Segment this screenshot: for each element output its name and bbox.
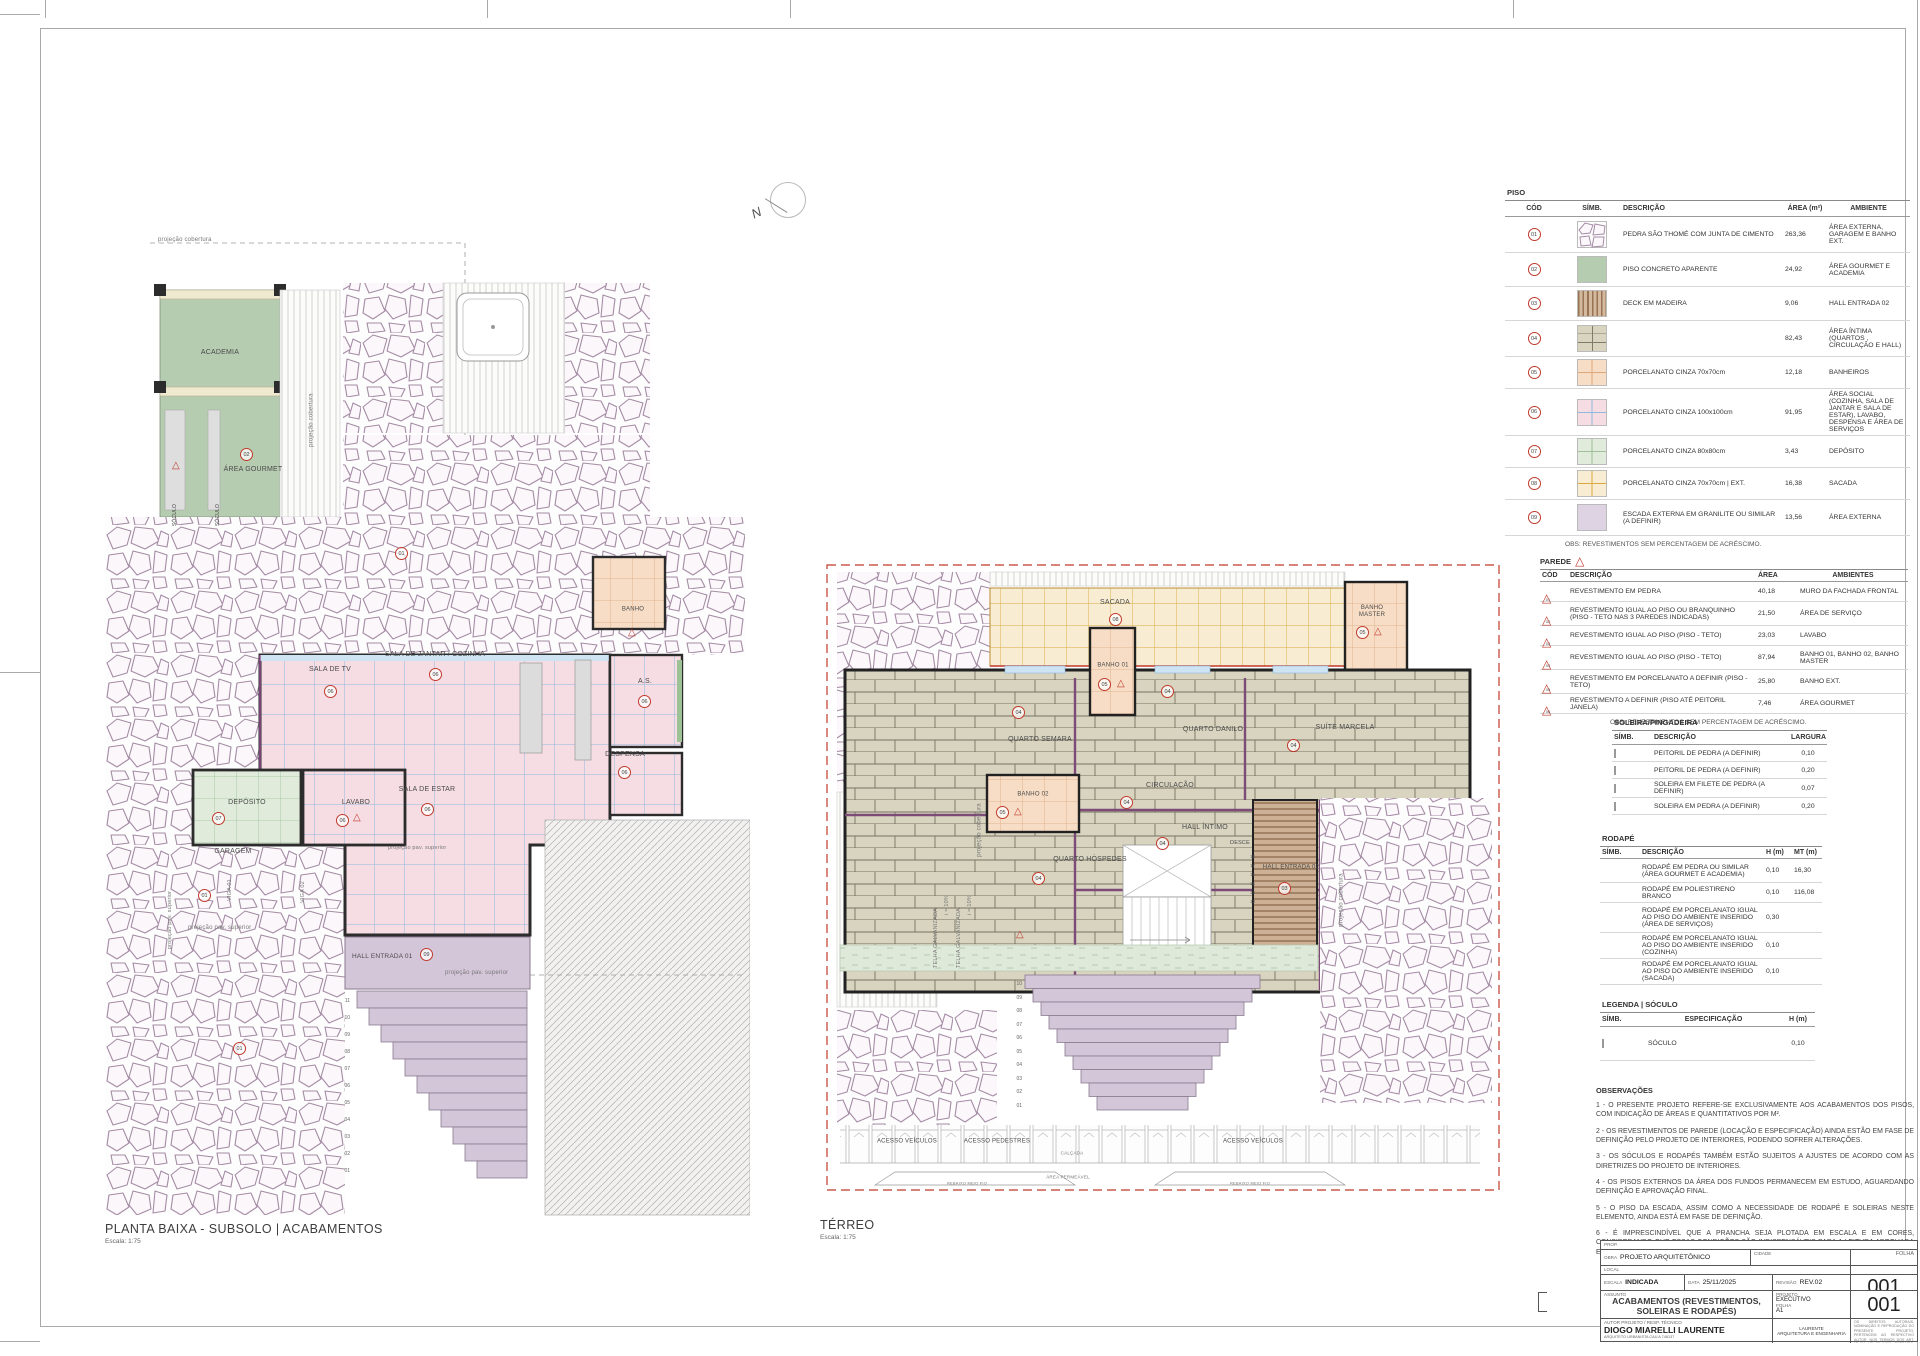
soculo-row: SÓCULO 0,10 xyxy=(1600,1027,1815,1061)
piso-code-marker: 03 xyxy=(1278,882,1291,895)
room-label-deposito: DEPÓSITO xyxy=(228,799,266,807)
stair-label-desce: DESCE xyxy=(1230,840,1250,846)
soleira-desc: SOLEIRA EM FILETE DE PEDRA (A DEFINIR) xyxy=(1652,781,1789,795)
parede-code: 02 xyxy=(1542,619,1554,624)
stair-step-numbers: 11 10 09 08 07 06 05 04 03 02 01 xyxy=(336,993,350,1180)
piso-row: 06 PORCELANATO CINZA 100x100cm 91,95 ÁRE… xyxy=(1505,389,1910,436)
piso-amb: SACADA xyxy=(1827,480,1910,487)
piso-code-marker: 04 xyxy=(1287,739,1300,752)
parede-row: △01 REVESTIMENTO EM PEDRA 40,18 MURO DA … xyxy=(1540,582,1908,602)
soleira-symbol xyxy=(1614,749,1616,758)
soleira-larg: 0,07 xyxy=(1789,785,1827,792)
tick xyxy=(0,14,40,15)
col-header: SÍMB. xyxy=(1563,205,1621,212)
room-label-circulacao: CIRCULAÇÃO xyxy=(1146,782,1194,790)
parede-amb: ÁREA GOURMET xyxy=(1798,700,1908,707)
projection-label: projeção pav. superior xyxy=(388,845,446,851)
parede-table-title: PAREDE xyxy=(1540,557,1571,566)
rodape-h: 0,10 xyxy=(1764,889,1792,896)
piso-amb: HALL ENTRADA 02 xyxy=(1827,300,1910,307)
parede-amb: BANHO EXT. xyxy=(1798,678,1908,685)
rodape-desc: RODAPÉ EM PEDRA OU SIMILAR (ÁREA GOURMET… xyxy=(1640,864,1764,878)
rodape-row: RODAPÉ EM POLIESTIRENO BRANCO 0,10 116,0… xyxy=(1600,883,1822,903)
titleblock-assunto-value: ACABAMENTOS (REVESTIMENTOS, SOLEIRAS E R… xyxy=(1604,1297,1769,1317)
rodape-desc: RODAPÉ EM PORCELANATO IGUAL AO PISO DO A… xyxy=(1640,961,1764,982)
piso-amb: ÁREA SOCIAL (COZINHA, SALA DE JANTAR E S… xyxy=(1827,391,1910,433)
soleira-larg: 0,20 xyxy=(1789,767,1827,774)
soleira-row: PEITORIL DE PEDRA (A DEFINIR) 0,20 xyxy=(1612,762,1827,779)
swatch-porcelanato-100 xyxy=(1577,399,1607,426)
piso-area: 9,06 xyxy=(1783,300,1827,307)
piso-amb: ÁREA EXTERNA, GARAGEM E BANHO EXT. xyxy=(1827,224,1910,245)
parede-row: △04 REVESTIMENTO IGUAL AO PISO (PISO - T… xyxy=(1540,646,1908,670)
parede-desc: REVESTIMENTO IGUAL AO PISO (PISO - TETO) xyxy=(1568,632,1756,639)
titleblock-sheet-number: 001 xyxy=(1851,1275,1917,1290)
piso-code-marker: 01 xyxy=(198,889,211,902)
room-label-hall-intimo: HALL ÍNTIMO xyxy=(1182,824,1228,832)
parede-code: 05 xyxy=(1542,687,1554,692)
parede-area: 40,18 xyxy=(1756,588,1798,595)
piso-desc: PORCELANATO CINZA 100x100cm xyxy=(1621,409,1783,416)
piso-row: 02 PISO CONCRETO APARENTE 24,92 ÁREA GOU… xyxy=(1505,253,1910,287)
sheet-edge-line xyxy=(1917,0,1918,1356)
piso-legend-table: PISO CÓD SÍMB. DESCRIÇÃO ÁREA (m²) AMBIE… xyxy=(1505,186,1910,548)
swatch-porcelanato-ext xyxy=(1577,470,1607,497)
piso-code-marker: 04 xyxy=(1161,685,1174,698)
titleblock-cidade-label: CIDADE xyxy=(1754,1251,1771,1256)
area-permeavel-label: ÁREA PERMEÁVEL xyxy=(1046,1174,1090,1179)
piso-code: 02 xyxy=(1528,263,1541,276)
titleblock-obra-label: OBRA xyxy=(1604,1255,1617,1260)
swatch-porcelanato-70 xyxy=(1577,359,1607,386)
piso-area: 12,18 xyxy=(1783,369,1827,376)
swatch-concrete xyxy=(1577,256,1607,283)
room-label-academia: ACADEMIA xyxy=(201,349,239,357)
stair-step-numbers: 10 09 08 07 06 05 04 03 02 01 xyxy=(1008,978,1022,1113)
piso-code-marker: 08 xyxy=(1109,613,1122,626)
col-header: ÁREA (m²) xyxy=(1783,205,1827,212)
piso-code-marker: 09 xyxy=(420,948,433,961)
titleblock-autor-value: DIOGO MIARELLI LAURENTE xyxy=(1604,1325,1769,1335)
piso-area: 3,43 xyxy=(1783,448,1827,455)
rodape-h: 0,10 xyxy=(1764,867,1792,874)
piso-desc: PISO CONCRETO APARENTE xyxy=(1621,266,1783,273)
piso-code: 01 xyxy=(1528,228,1541,241)
room-label-suite-marcela: SUÍTE MARCELA xyxy=(1316,724,1375,732)
titleblock-autor-sub: ARQUITETO URBANISTA CAU A 748137 xyxy=(1604,1335,1769,1339)
col-header: CÓD xyxy=(1505,205,1563,212)
col-header: H (m) xyxy=(1781,1016,1815,1023)
rebaixo-label: REBAIXO MEIO FIO xyxy=(1230,1182,1270,1187)
parede-code: 03 xyxy=(1542,641,1554,646)
swatch-vinyl-plank xyxy=(1577,325,1607,352)
room-label-banho-ext: BANHO xyxy=(622,607,644,614)
piso-obs-note: OBS: REVESTIMENTOS SEM PERCENTAGEM DE AC… xyxy=(1505,536,1910,548)
room-label-quarto-hospedes: QUARTO HÓSPEDES xyxy=(1053,856,1127,864)
room-label-hall-entrada-02: HALL ENTRADA 02 xyxy=(1263,865,1319,872)
soleira-row: SOLEIRA EM FILETE DE PEDRA (A DEFINIR) 0… xyxy=(1612,779,1827,798)
room-label-garagem: GARAGEM xyxy=(214,848,251,856)
room-label-lavabo: LAVABO xyxy=(342,799,370,807)
rodape-h: 0,10 xyxy=(1764,968,1792,975)
roof-label-telha: TELHA GALVANIZADA xyxy=(933,908,939,968)
north-arrow-icon xyxy=(770,182,806,218)
room-label-sala-jantar: SALA DE JANTAR / COZINHA xyxy=(385,651,485,659)
piso-table-title: PISO xyxy=(1505,186,1910,201)
parede-code-triangle: △ xyxy=(628,628,636,638)
tick xyxy=(487,0,488,18)
tick xyxy=(1513,0,1514,18)
piso-amb: BANHEIROS xyxy=(1827,369,1910,376)
roof-label-telha: TELHA GALVANIZADA xyxy=(956,908,962,968)
piso-code: 05 xyxy=(1528,366,1541,379)
piso-row: 09 ESCADA EXTERNA EM GRANILITE OU SIMILA… xyxy=(1505,500,1910,536)
parede-area: 87,94 xyxy=(1756,654,1798,661)
swatch-porcelanato-80 xyxy=(1577,438,1607,465)
soleira-legend-table: SOLEIRA/PINGADEIRA SÍMB. DESCRIÇÃO LARGU… xyxy=(1612,716,1827,815)
piso-code-marker: 06 xyxy=(336,814,349,827)
piso-area: 263,36 xyxy=(1783,231,1827,238)
parede-desc: REVESTIMENTO EM PORCELANATO A DEFINIR (P… xyxy=(1568,675,1756,689)
col-header: SÍMB. xyxy=(1612,734,1652,741)
soleira-row: SOLEIRA EM PEDRA (A DEFINIR) 0,20 xyxy=(1612,798,1827,815)
soculo-label: SÓCULO xyxy=(216,504,222,526)
piso-desc: PORCELANATO CINZA 70x70cm xyxy=(1621,369,1783,376)
piso-code-marker: 06 xyxy=(324,685,337,698)
access-label-veiculos: ACESSO VEÍCULOS xyxy=(1223,1139,1283,1146)
titleblock-local-label: LOCAL xyxy=(1601,1266,1851,1274)
projection-label: projeção pav. superior xyxy=(445,970,508,977)
parede-amb: LAVABO xyxy=(1798,632,1908,639)
swatch-granilite xyxy=(1577,504,1607,531)
col-header: ÁREA xyxy=(1756,572,1798,579)
parede-desc: REVESTIMENTO IGUAL AO PISO (PISO - TETO) xyxy=(1568,654,1756,661)
col-header: ESPECIFICAÇÃO xyxy=(1646,1016,1781,1023)
plan-scale-subsolo: Escala: 1:75 xyxy=(105,1238,141,1245)
titleblock-obra-value: PROJETO ARQUITETÔNICO xyxy=(1620,1254,1710,1261)
rodape-mt: 116,08 xyxy=(1792,889,1822,896)
parede-row: △03 REVESTIMENTO IGUAL AO PISO (PISO - T… xyxy=(1540,626,1908,646)
parede-code: 06 xyxy=(1542,709,1554,714)
piso-amb: ÁREA GOURMET E ACADEMIA xyxy=(1827,263,1910,277)
projection-label: projeção pav. superior xyxy=(167,891,173,949)
soleira-desc: SOLEIRA EM PEDRA (A DEFINIR) xyxy=(1652,803,1789,810)
parede-code-triangle: △ xyxy=(1374,627,1382,637)
piso-row: 03 DECK EM MADEIRA 9,06 HALL ENTRADA 02 xyxy=(1505,287,1910,321)
col-header: AMBIENTES xyxy=(1798,572,1908,579)
piso-area: 13,56 xyxy=(1783,514,1827,521)
piso-desc: ESCADA EXTERNA EM GRANILITE OU SIMILAR (… xyxy=(1621,511,1783,525)
col-header: CÓD xyxy=(1540,572,1568,579)
swatch-stone xyxy=(1577,221,1607,248)
piso-code-marker: 06 xyxy=(429,668,442,681)
rodape-desc: RODAPÉ EM POLIESTIRENO BRANCO xyxy=(1640,886,1764,900)
plan-title-subsolo: PLANTA BAIXA - SUBSOLO | ACABAMENTOS xyxy=(105,1222,383,1236)
soculo-legend-table: LEGENDA | SÓCULO SÍMB. ESPECIFICAÇÃO H (… xyxy=(1600,998,1815,1061)
soleira-larg: 0,20 xyxy=(1789,803,1827,810)
parede-row: △05 REVESTIMENTO EM PORCELANATO A DEFINI… xyxy=(1540,670,1908,694)
observacao-item: 5 - O PISO DA ESCADA, ASSIM COMO A NECES… xyxy=(1596,1204,1914,1223)
parede-area: 7,46 xyxy=(1756,700,1798,707)
plan-terreo-drawing xyxy=(825,560,1515,1220)
titleblock-sheet-number: 001 xyxy=(1851,1291,1917,1318)
parede-code: 01 xyxy=(1542,597,1554,602)
col-header: MT (m) xyxy=(1792,849,1822,856)
piso-table-header: CÓD SÍMB. DESCRIÇÃO ÁREA (m²) AMBIENTE xyxy=(1505,201,1910,217)
titleblock-disclaimer: OS DIREITOS AUTORAIS, NOMINAÇÃO E REPROD… xyxy=(1851,1319,1917,1343)
projection-label: projeção cobertura xyxy=(977,803,984,857)
rebaixo-label: REBAIXO MEIO FIO xyxy=(947,1182,987,1187)
soleira-desc: PEITORIL DE PEDRA (A DEFINIR) xyxy=(1652,767,1789,774)
titleblock-folha2-value: A1 xyxy=(1776,1308,1847,1314)
piso-area: 91,95 xyxy=(1783,409,1827,416)
room-label-sacada: SACADA xyxy=(1100,599,1130,607)
parede-row: △02 REVESTIMENTO IGUAL AO PISO OU BRANQU… xyxy=(1540,602,1908,626)
piso-code-marker: 04 xyxy=(1012,706,1025,719)
tick xyxy=(0,672,40,673)
rodape-row: RODAPÉ EM PEDRA OU SIMILAR (ÁREA GOURMET… xyxy=(1600,859,1822,883)
piso-row: 04 82,43 ÁREA ÍNTIMA (QUARTOS , CIRCULAÇ… xyxy=(1505,321,1910,357)
projection-label: projeção pav. superior xyxy=(188,925,251,932)
parede-code-triangle: △ xyxy=(172,461,180,471)
soculo-desc: SÓCULO xyxy=(1646,1040,1781,1047)
parede-legend-table: PAREDE △ CÓD DESCRIÇÃO ÁREA AMBIENTES △0… xyxy=(1540,554,1908,726)
piso-row: 01 PEDRA SÃO THOMÉ COM JUNTA DE CIMENTO … xyxy=(1505,217,1910,253)
soculo-h: 0,10 xyxy=(1781,1040,1815,1047)
room-label-despensa: DESPENSA xyxy=(605,751,645,759)
soculo-symbol xyxy=(1602,1039,1604,1048)
col-header: SÍMB. xyxy=(1600,1016,1646,1023)
plan-title-terreo: TÉRREO xyxy=(820,1218,875,1232)
titleblock-revisao-value: REV.02 xyxy=(1799,1279,1822,1286)
piso-desc: PORCELANATO CINZA 80x80cm xyxy=(1621,448,1783,455)
soculo-label: SÓCULO xyxy=(173,504,179,526)
piso-row: 05 PORCELANATO CINZA 70x70cm 12,18 BANHE… xyxy=(1505,357,1910,389)
parede-code-triangle: △ xyxy=(1117,679,1125,689)
titleblock-bracket xyxy=(1538,1292,1547,1312)
tick xyxy=(45,0,46,18)
parede-code-triangle: △ xyxy=(1016,930,1024,940)
access-label-pedestres: ACESSO PEDESTRES xyxy=(964,1139,1030,1146)
parede-code-triangle: △ xyxy=(1014,807,1022,817)
titleblock-folha-label: FOLHA xyxy=(1896,1251,1914,1257)
piso-code-marker: 05 xyxy=(1098,678,1111,691)
roof-label-inclinacao: i = 10% xyxy=(967,895,973,915)
piso-code: 08 xyxy=(1528,477,1541,490)
piso-desc: PEDRA SÃO THOMÉ COM JUNTA DE CIMENTO xyxy=(1621,231,1783,238)
col-header: DESCRIÇÃO xyxy=(1652,734,1789,741)
parede-area: 25,80 xyxy=(1756,678,1798,685)
titleblock-prop-label: PROP. xyxy=(1601,1241,1917,1249)
title-block: PROP. OBRA PROJETO ARQUITETÔNICO CIDADE … xyxy=(1600,1240,1918,1342)
piso-code-marker: 06 xyxy=(421,803,434,816)
room-label-sala-estar: SALA DE ESTAR xyxy=(399,786,456,794)
room-label-banho02: BANHO 02 xyxy=(1017,792,1048,799)
parede-desc: REVESTIMENTO EM PEDRA xyxy=(1568,588,1756,595)
titleblock-revisao-label: REVISÃO xyxy=(1776,1280,1796,1285)
piso-code: 07 xyxy=(1528,445,1541,458)
observacao-item: 3 - OS SÓCULOS E RODAPÉS TAMBÉM ESTÃO SU… xyxy=(1596,1152,1914,1171)
rodape-table-title: RODAPÉ xyxy=(1600,832,1822,847)
piso-code-marker: 04 xyxy=(1120,796,1133,809)
projection-label: projeção cobertura xyxy=(1339,873,1346,927)
piso-code-marker: 07 xyxy=(212,812,225,825)
piso-desc: PORCELANATO CINZA 70x70cm | EXT. xyxy=(1621,480,1783,487)
col-header: DESCRIÇÃO xyxy=(1621,205,1783,212)
roof-label-inclinacao: i = 10% xyxy=(944,895,950,915)
parede-amb: BANHO 01, BANHO 02, BANHO MASTER xyxy=(1798,651,1908,665)
parede-code: 04 xyxy=(1542,663,1554,668)
piso-amb: ÁREA ÍNTIMA (QUARTOS , CIRCULAÇÃO E HALL… xyxy=(1827,328,1910,349)
rodape-row: RODAPÉ EM PORCELANATO IGUAL AO PISO DO A… xyxy=(1600,903,1822,933)
piso-code-marker: 02 xyxy=(240,448,253,461)
projection-label: projeção cobertura xyxy=(309,393,316,447)
parede-row: △06 REVESTIMENTO A DEFINIR (PISO ATÉ PEI… xyxy=(1540,694,1908,714)
rodape-h: 0,30 xyxy=(1764,914,1792,921)
parede-area: 21,50 xyxy=(1756,610,1798,617)
access-label-veiculos: ACESSO VEÍCULOS xyxy=(877,1139,937,1146)
room-label-sala-tv: SALA DE TV xyxy=(309,666,351,674)
room-label-banho-master: BANHO MASTER xyxy=(1359,605,1385,619)
piso-code: 03 xyxy=(1528,297,1541,310)
piso-area: 16,38 xyxy=(1783,480,1827,487)
col-header: LARGURA xyxy=(1789,734,1827,741)
rodape-mt: 16,30 xyxy=(1792,867,1822,874)
viga-label: VIGA 02 xyxy=(300,881,306,903)
tick xyxy=(790,0,791,18)
piso-code-marker: 01 xyxy=(233,1042,246,1055)
drawing-sheet: projeção cobertura ACADEMIA ÁREA GOURMET… xyxy=(0,0,1920,1356)
soleira-desc: PEITORIL DE PEDRA (A DEFINIR) xyxy=(1652,750,1789,757)
tick xyxy=(0,1341,40,1342)
piso-code: 06 xyxy=(1528,406,1541,419)
piso-code-marker: 05 xyxy=(1356,626,1369,639)
parede-area: 23,03 xyxy=(1756,632,1798,639)
soleira-larg: 0,10 xyxy=(1789,750,1827,757)
titleblock-escala-value: INDICADA xyxy=(1625,1279,1658,1286)
plan-scale-terreo: Escala: 1:75 xyxy=(820,1234,856,1241)
piso-code: 09 xyxy=(1528,511,1541,524)
rodape-row: RODAPÉ EM PORCELANATO IGUAL AO PISO DO A… xyxy=(1600,933,1822,959)
parede-desc: REVESTIMENTO A DEFINIR (PISO ATÉ PEITORI… xyxy=(1568,697,1756,711)
piso-code-marker: 04 xyxy=(1156,837,1169,850)
parede-desc: REVESTIMENTO IGUAL AO PISO OU BRANQUINHO… xyxy=(1568,607,1756,621)
room-label-quarto-danilo: QUARTO DANILO xyxy=(1183,726,1243,734)
room-label-as: A.S. xyxy=(638,678,652,686)
soleira-symbol xyxy=(1614,766,1616,775)
col-header: AMBIENTE xyxy=(1827,205,1910,212)
observacoes-title: OBSERVAÇÕES xyxy=(1596,1086,1914,1095)
rodape-desc: RODAPÉ EM PORCELANATO IGUAL AO PISO DO A… xyxy=(1640,907,1764,928)
parede-code-triangle: △ xyxy=(353,813,361,823)
projection-label: projeção cobertura xyxy=(158,237,212,244)
triangle-icon: △ xyxy=(1575,555,1584,567)
col-header: DESCRIÇÃO xyxy=(1568,572,1756,579)
rodape-legend-table: RODAPÉ SÍMB. DESCRIÇÃO H (m) MT (m) RODA… xyxy=(1600,832,1822,985)
col-header: H (m) xyxy=(1764,849,1792,856)
soleira-symbol xyxy=(1614,802,1616,811)
soleira-symbol xyxy=(1614,784,1616,793)
room-label-area-gourmet: ÁREA GOURMET xyxy=(224,466,283,474)
calcada-label: CALÇADA xyxy=(1061,1150,1084,1155)
observacao-item: 1 - O PRESENTE PROJETO REFERE-SE EXCLUSI… xyxy=(1596,1101,1914,1120)
piso-code-marker: 05 xyxy=(996,806,1009,819)
piso-area: 82,43 xyxy=(1783,335,1827,342)
room-label-banho01: BANHO 01 xyxy=(1097,663,1128,670)
rodape-h: 0,10 xyxy=(1764,942,1792,949)
titleblock-data-label: DATA xyxy=(1688,1280,1700,1285)
titleblock-data-value: 25/11/2025 xyxy=(1703,1279,1737,1286)
soleira-row: PEITORIL DE PEDRA (A DEFINIR) 0,10 xyxy=(1612,745,1827,762)
piso-code-marker: 06 xyxy=(618,766,631,779)
piso-amb: DEPÓSITO xyxy=(1827,448,1910,455)
titleblock-escala-label: ESCALA xyxy=(1604,1280,1622,1285)
room-label-quarto-semara: QUARTO SEMARA xyxy=(1008,736,1072,744)
parede-amb: MURO DA FACHADA FRONTAL xyxy=(1798,588,1908,595)
observacao-item: 2 - OS REVESTIMENTOS DE PAREDE (LOCAÇÃO … xyxy=(1596,1127,1914,1146)
col-header: SÍMB. xyxy=(1600,849,1640,856)
piso-code-marker: 04 xyxy=(1032,872,1045,885)
piso-desc: DECK EM MADEIRA xyxy=(1621,300,1783,307)
viga-label: VIGA 01 xyxy=(227,879,233,901)
piso-code-marker: 01 xyxy=(395,547,408,560)
stair-step-numbers: 18 17 16 15 14 13 xyxy=(1243,852,1255,906)
piso-area: 24,92 xyxy=(1783,266,1827,273)
observacao-item: 4 - OS PISOS EXTERNOS DA ÁREA DOS FUNDOS… xyxy=(1596,1178,1914,1197)
piso-code: 04 xyxy=(1528,332,1541,345)
piso-amb: ÁREA EXTERNA xyxy=(1827,514,1910,521)
titleblock-company: LAURENTE ARQUITETURA E ENGENHARIA xyxy=(1773,1319,1851,1343)
piso-row: 07 PORCELANATO CINZA 80x80cm 3,43 DEPÓSI… xyxy=(1505,436,1910,468)
soculo-table-title: LEGENDA | SÓCULO xyxy=(1600,998,1815,1013)
parede-amb: ÁREA DE SERVIÇO xyxy=(1798,610,1908,617)
rodape-desc: RODAPÉ EM PORCELANATO IGUAL AO PISO DO A… xyxy=(1640,935,1764,956)
soleira-table-title: SOLEIRA/PINGADEIRA xyxy=(1612,716,1827,731)
col-header: DESCRIÇÃO xyxy=(1640,849,1764,856)
room-label-hall-entrada-01: HALL ENTRADA 01 xyxy=(352,953,413,960)
piso-row: 08 PORCELANATO CINZA 70x70cm | EXT. 16,3… xyxy=(1505,468,1910,500)
swatch-deck xyxy=(1577,290,1607,317)
rodape-row: RODAPÉ EM PORCELANATO IGUAL AO PISO DO A… xyxy=(1600,959,1822,985)
piso-code-marker: 06 xyxy=(638,695,651,708)
observacoes-block: OBSERVAÇÕES 1 - O PRESENTE PROJETO REFER… xyxy=(1596,1086,1914,1264)
plan-subsolo-drawing xyxy=(105,205,750,1220)
